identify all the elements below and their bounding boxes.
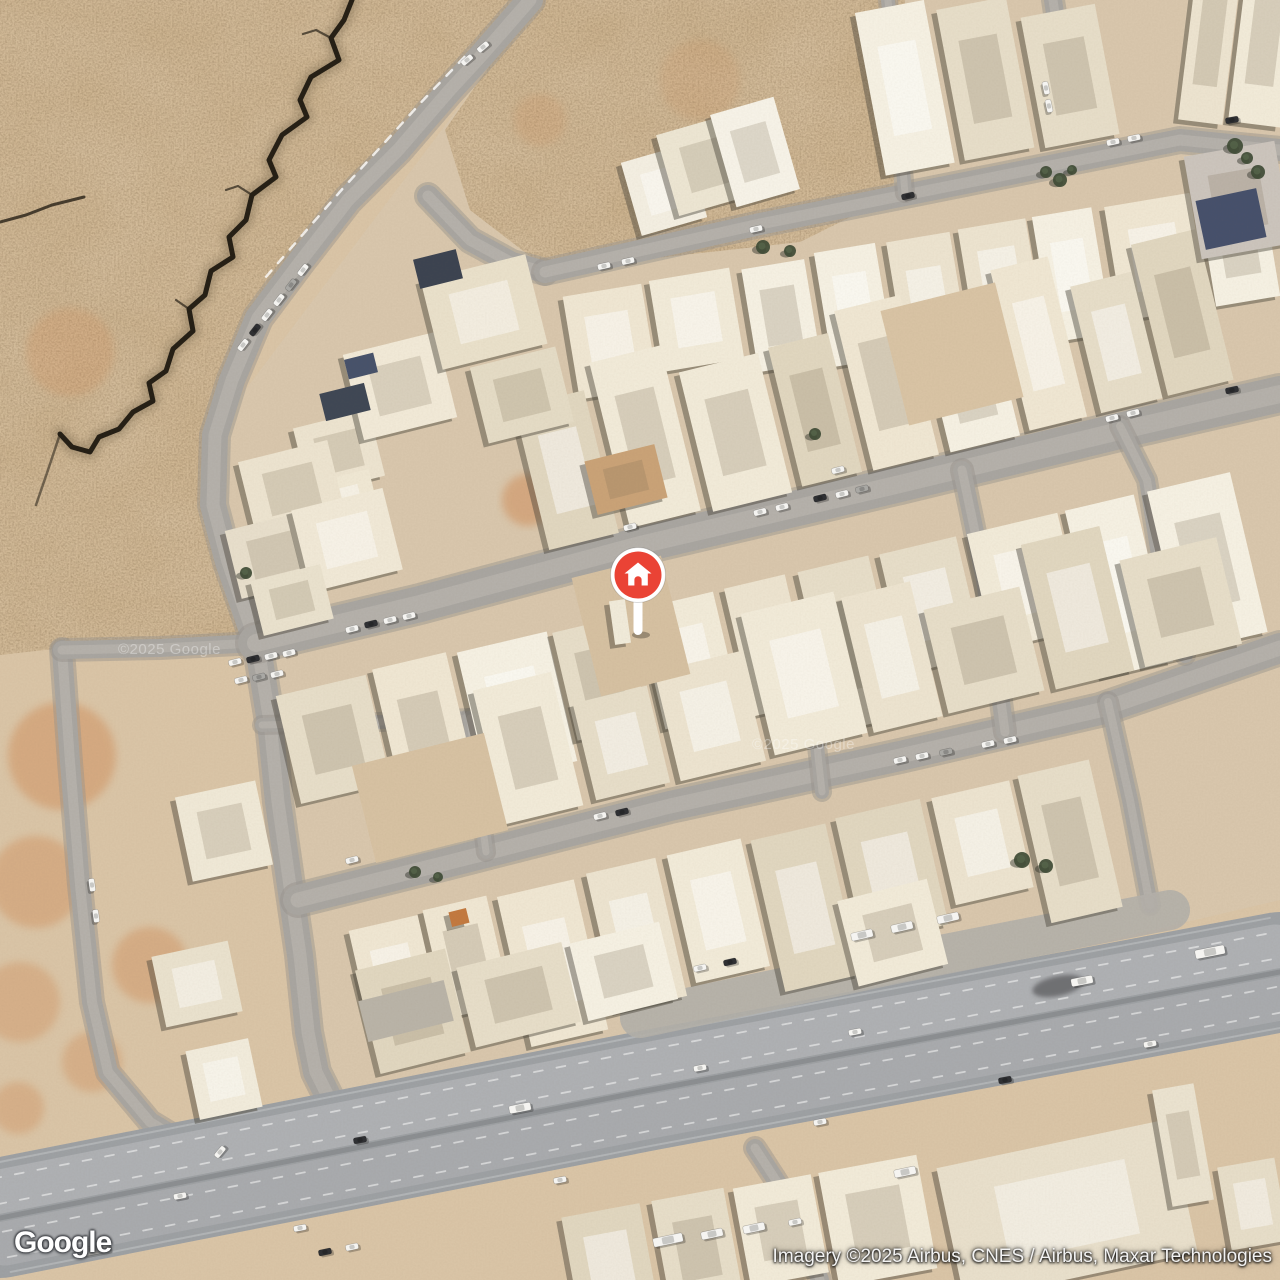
imagery-attribution: Imagery ©2025 Airbus, CNES / Airbus, Max… [773, 1246, 1272, 1268]
map-viewport[interactable]: ©2025 Google ©2025 Google Google Imagery… [0, 0, 1280, 1280]
google-watermark: ©2025 Google [752, 736, 855, 753]
location-pin[interactable] [603, 540, 673, 640]
pin-graphic [603, 540, 673, 640]
google-watermark: ©2025 Google [118, 641, 221, 658]
google-logo[interactable]: Google [14, 1226, 111, 1260]
